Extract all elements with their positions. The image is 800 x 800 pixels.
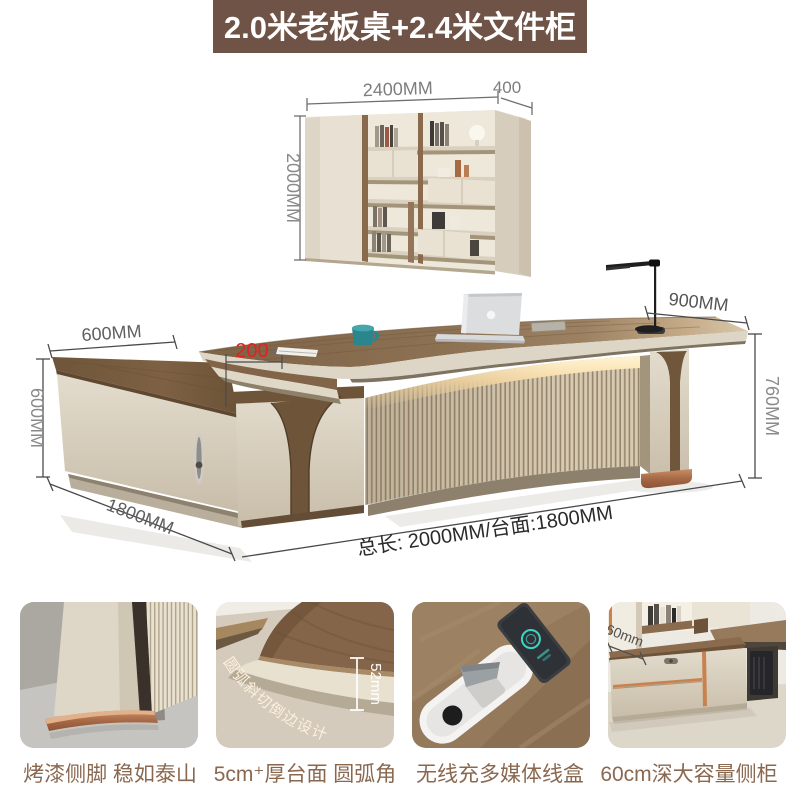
svg-text:600MM: 600MM (27, 388, 47, 448)
svg-text:52mm: 52mm (367, 663, 384, 705)
svg-text:2000MM: 2000MM (283, 153, 303, 223)
svg-text:5cm⁺厚台面 圆弧角: 5cm⁺厚台面 圆弧角 (214, 763, 397, 786)
svg-text:600MM: 600MM (81, 321, 142, 345)
svg-text:2.0米老板桌+2.4米文件柜: 2.0米老板桌+2.4米文件柜 (224, 10, 576, 45)
svg-text:200: 200 (235, 340, 268, 362)
svg-text:400: 400 (493, 78, 521, 97)
svg-text:无线充多媒体线盒: 无线充多媒体线盒 (416, 763, 584, 786)
svg-text:760MM: 760MM (762, 376, 782, 436)
svg-text:烤漆侧脚 稳如泰山: 烤漆侧脚 稳如泰山 (23, 763, 197, 786)
svg-text:60cm深大容量侧柜: 60cm深大容量侧柜 (600, 763, 777, 786)
svg-text:2400MM: 2400MM (362, 78, 433, 100)
